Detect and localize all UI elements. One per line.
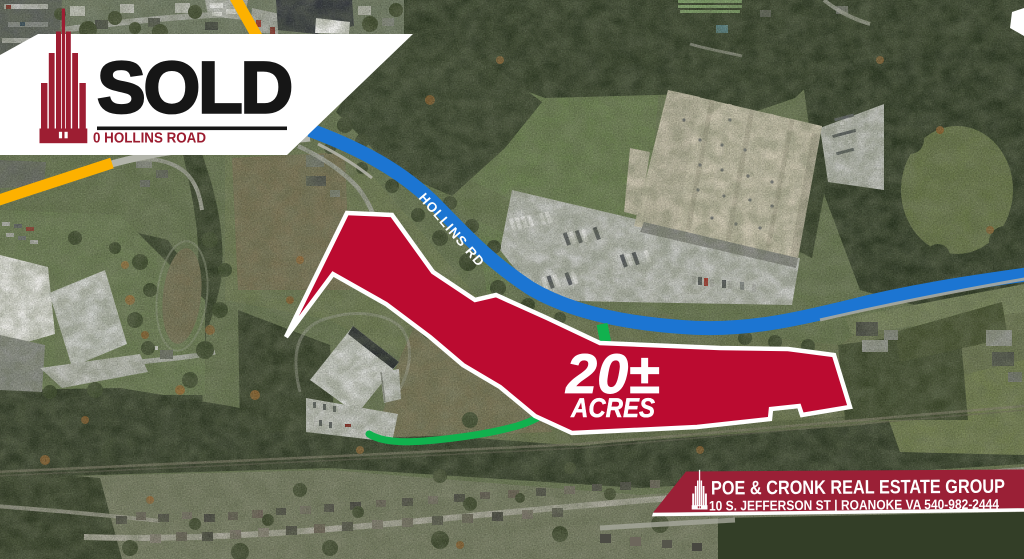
svg-text:0 HOLLINS ROAD: 0 HOLLINS ROAD bbox=[93, 131, 206, 147]
svg-text:10 S. JEFFERSON ST | ROANOKE V: 10 S. JEFFERSON ST | ROANOKE VA 540-982-… bbox=[709, 497, 999, 515]
svg-text:SOLD: SOLD bbox=[97, 48, 291, 129]
svg-text:POE & CRONK REAL ESTATE GROUP: POE & CRONK REAL ESTATE GROUP bbox=[711, 476, 1005, 500]
svg-text:ACRES: ACRES bbox=[570, 393, 655, 423]
